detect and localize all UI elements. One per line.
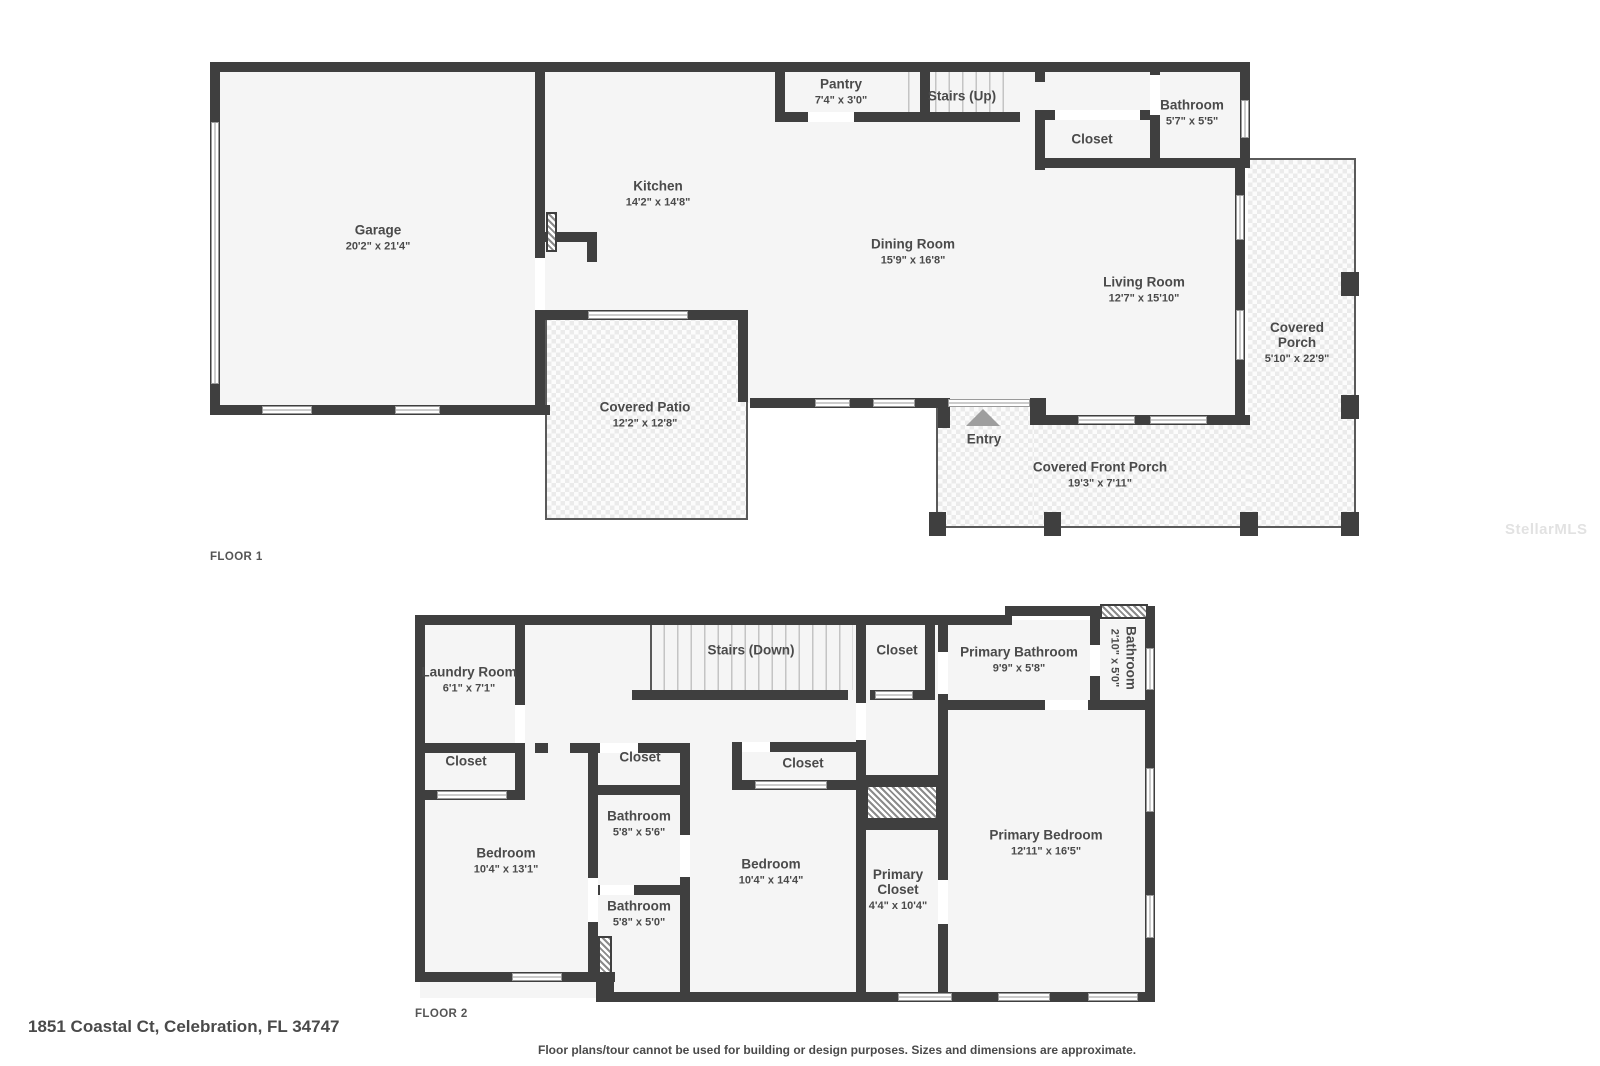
room-label-covered-patio: Covered Patio 12'2" x 12'8": [600, 401, 691, 430]
room-dims: 4'4" x 10'4": [860, 900, 936, 912]
wall: [210, 62, 1250, 72]
room-dims: 10'4" x 14'4": [739, 874, 804, 886]
door-opening: [588, 878, 598, 922]
room-dims: 6'1" x 7'1": [421, 682, 516, 694]
window: [948, 399, 1030, 407]
room-name: Stairs (Down): [707, 644, 794, 659]
room-label-entry: Entry: [967, 433, 1002, 448]
floor1-label: FLOOR 1: [210, 551, 263, 563]
room-name: Covered Patio: [600, 401, 691, 416]
door-opening: [742, 742, 770, 752]
fixture-hatch: [1100, 604, 1148, 619]
porch-post: [1044, 512, 1061, 536]
room-name: Bathroom: [1160, 99, 1224, 114]
room-label-closet-mid: Closet: [619, 751, 660, 766]
room-name: Covered Front Porch: [1033, 461, 1167, 476]
room-label-bathroom-small: Bathroom 2'10" x 5'0": [1109, 626, 1138, 690]
room-dims: 12'2" x 12'8": [600, 417, 691, 429]
door-opening: [680, 835, 690, 877]
wall: [908, 112, 1020, 122]
wall: [535, 743, 548, 753]
window: [1078, 416, 1135, 424]
room-name: Bathroom: [607, 900, 671, 915]
wall: [856, 820, 948, 830]
wall: [588, 743, 598, 982]
window: [755, 781, 827, 789]
room-name: Closet: [445, 755, 486, 770]
room-label-closet-f1: Closet: [1071, 133, 1112, 148]
porch-post: [1341, 395, 1359, 419]
watermark-text: StellarMLS: [1505, 521, 1588, 538]
window: [437, 791, 507, 799]
room-label-bedroom-mid: Bedroom 10'4" x 14'4": [739, 858, 804, 887]
room-name: Closet: [782, 757, 823, 772]
room-label-primary-bathroom: Primary Bathroom 9'9" x 5'8": [960, 646, 1078, 675]
porch-post: [929, 512, 946, 536]
floor2-label: FLOOR 2: [415, 1008, 468, 1020]
window: [262, 406, 312, 414]
room-name: Living Room: [1103, 276, 1185, 291]
wall: [856, 615, 866, 1002]
window: [873, 399, 915, 407]
room-dims: 2'10" x 5'0": [1109, 626, 1121, 690]
window: [395, 406, 440, 414]
room-name: Primary Bathroom: [960, 646, 1078, 661]
room-label-living: Living Room 12'7" x 15'10": [1103, 276, 1185, 305]
room-label-closet-top: Closet: [876, 644, 917, 659]
window: [512, 973, 562, 981]
room-name: Covered Porch: [1251, 321, 1343, 351]
room-dims: 12'11" x 16'5": [989, 845, 1102, 857]
wall: [210, 405, 550, 415]
entry-arrow: [966, 409, 1000, 426]
window: [1241, 100, 1249, 138]
wall: [925, 615, 935, 700]
door-opening: [808, 112, 854, 122]
room-dims: 5'10" x 22'9": [1251, 353, 1343, 365]
room-label-bathroom2: Bathroom 5'8" x 5'0": [607, 900, 671, 929]
room-label-primary-closet: Primary Closet 4'4" x 10'4": [860, 868, 936, 912]
door-opening: [535, 258, 545, 310]
room-dims: 12'7" x 15'10": [1103, 292, 1185, 304]
room-name: Pantry: [815, 78, 867, 93]
room-name: Laundry Room: [421, 666, 516, 681]
room-dims: 14'2" x 14'8": [626, 196, 691, 208]
room-label-closet-third: Closet: [782, 757, 823, 772]
door-opening: [600, 885, 634, 895]
shower-hatch: [598, 936, 612, 974]
room-label-bathroom-f1: Bathroom 5'7" x 5'5": [1160, 99, 1224, 128]
wall: [1035, 158, 1250, 168]
porch-post: [1240, 512, 1258, 536]
wall: [1035, 62, 1045, 82]
window: [1146, 895, 1154, 938]
room-dims: 10'4" x 13'1": [474, 863, 539, 875]
wall: [856, 775, 948, 785]
room-label-primary-bedroom: Primary Bedroom 12'11" x 16'5": [989, 829, 1102, 858]
door-opening: [1055, 110, 1140, 120]
floorplan-canvas: Garage 20'2" x 21'4" Kitchen 14'2" x 14'…: [0, 0, 1600, 1066]
window: [211, 122, 219, 384]
room-name: Primary Bedroom: [989, 829, 1102, 844]
room-label-stairs-up: Stairs (Up): [928, 90, 996, 105]
room-label-kitchen: Kitchen 14'2" x 14'8": [626, 180, 691, 209]
shower-hatch: [866, 785, 938, 820]
room-dims: 9'9" x 5'8": [960, 662, 1078, 674]
room-name: Closet: [876, 644, 917, 659]
room-dims: 5'7" x 5'5": [1160, 115, 1224, 127]
window: [898, 993, 952, 1001]
window: [1146, 768, 1154, 812]
room-label-bathroom1: Bathroom 5'8" x 5'6": [607, 810, 671, 839]
room-label-dining: Dining Room 15'9" x 16'8": [871, 238, 955, 267]
door-opening: [1090, 645, 1100, 676]
room-name: Closet: [619, 751, 660, 766]
door-opening: [938, 880, 948, 924]
room-label-stairs-down: Stairs (Down): [707, 644, 794, 659]
door-opening: [515, 705, 525, 743]
room-dims: 5'8" x 5'0": [607, 916, 671, 928]
property-address: 1851 Coastal Ct, Celebration, FL 34747: [28, 1017, 339, 1037]
room-name: Garage: [346, 224, 411, 239]
window: [1236, 310, 1244, 360]
window: [1146, 648, 1154, 690]
room-name: Closet: [1071, 133, 1112, 148]
room-name: Primary Closet: [860, 868, 936, 898]
room-label-front-porch: Covered Front Porch 19'3" x 7'11": [1033, 461, 1167, 490]
door-opening: [1045, 700, 1088, 710]
fixture-hatch: [546, 212, 557, 252]
wall: [415, 615, 1012, 625]
wall: [587, 232, 597, 262]
wall: [632, 690, 848, 700]
window: [1150, 416, 1207, 424]
window: [1236, 195, 1244, 240]
disclaimer-text: Floor plans/tour cannot be used for buil…: [538, 1043, 1136, 1057]
room-dims: 20'2" x 21'4": [346, 240, 411, 252]
wall: [1035, 415, 1250, 425]
wall: [415, 743, 525, 753]
wall: [1090, 700, 1155, 710]
wall: [1030, 398, 1046, 425]
wall: [738, 310, 748, 402]
room-label-garage: Garage 20'2" x 21'4": [346, 224, 411, 253]
window: [1088, 993, 1138, 1001]
room-dims: 19'3" x 7'11": [1033, 477, 1167, 489]
room-label-laundry: Laundry Room 6'1" x 7'1": [421, 666, 516, 695]
window: [875, 691, 913, 699]
room-name: Bathroom: [1123, 626, 1138, 690]
room-name: Bathroom: [607, 810, 671, 825]
room-label-closet-left: Closet: [445, 755, 486, 770]
porch-post: [1341, 272, 1359, 296]
room-name: Bedroom: [474, 847, 539, 862]
room-name: Kitchen: [626, 180, 691, 195]
door-opening: [856, 703, 866, 740]
window: [998, 993, 1050, 1001]
window: [815, 399, 850, 407]
porch-post: [1341, 512, 1359, 536]
door-opening: [1150, 75, 1160, 115]
edge-line: [650, 625, 652, 690]
door-opening: [938, 652, 948, 694]
room-dims: 5'8" x 5'6": [607, 826, 671, 838]
room-label-bedroom-left: Bedroom 10'4" x 13'1": [474, 847, 539, 876]
room-name: Dining Room: [871, 238, 955, 253]
room-name: Stairs (Up): [928, 90, 996, 105]
wall: [588, 785, 690, 795]
wall: [535, 62, 545, 415]
room-label-covered-porch: Covered Porch 5'10" x 22'9": [1251, 321, 1343, 365]
room-label-pantry: Pantry 7'4" x 3'0": [815, 78, 867, 107]
room-dims: 15'9" x 16'8": [871, 254, 955, 266]
room-dims: 7'4" x 3'0": [815, 94, 867, 106]
room-name: Bedroom: [739, 858, 804, 873]
window: [588, 311, 688, 319]
room-name: Entry: [967, 433, 1002, 448]
